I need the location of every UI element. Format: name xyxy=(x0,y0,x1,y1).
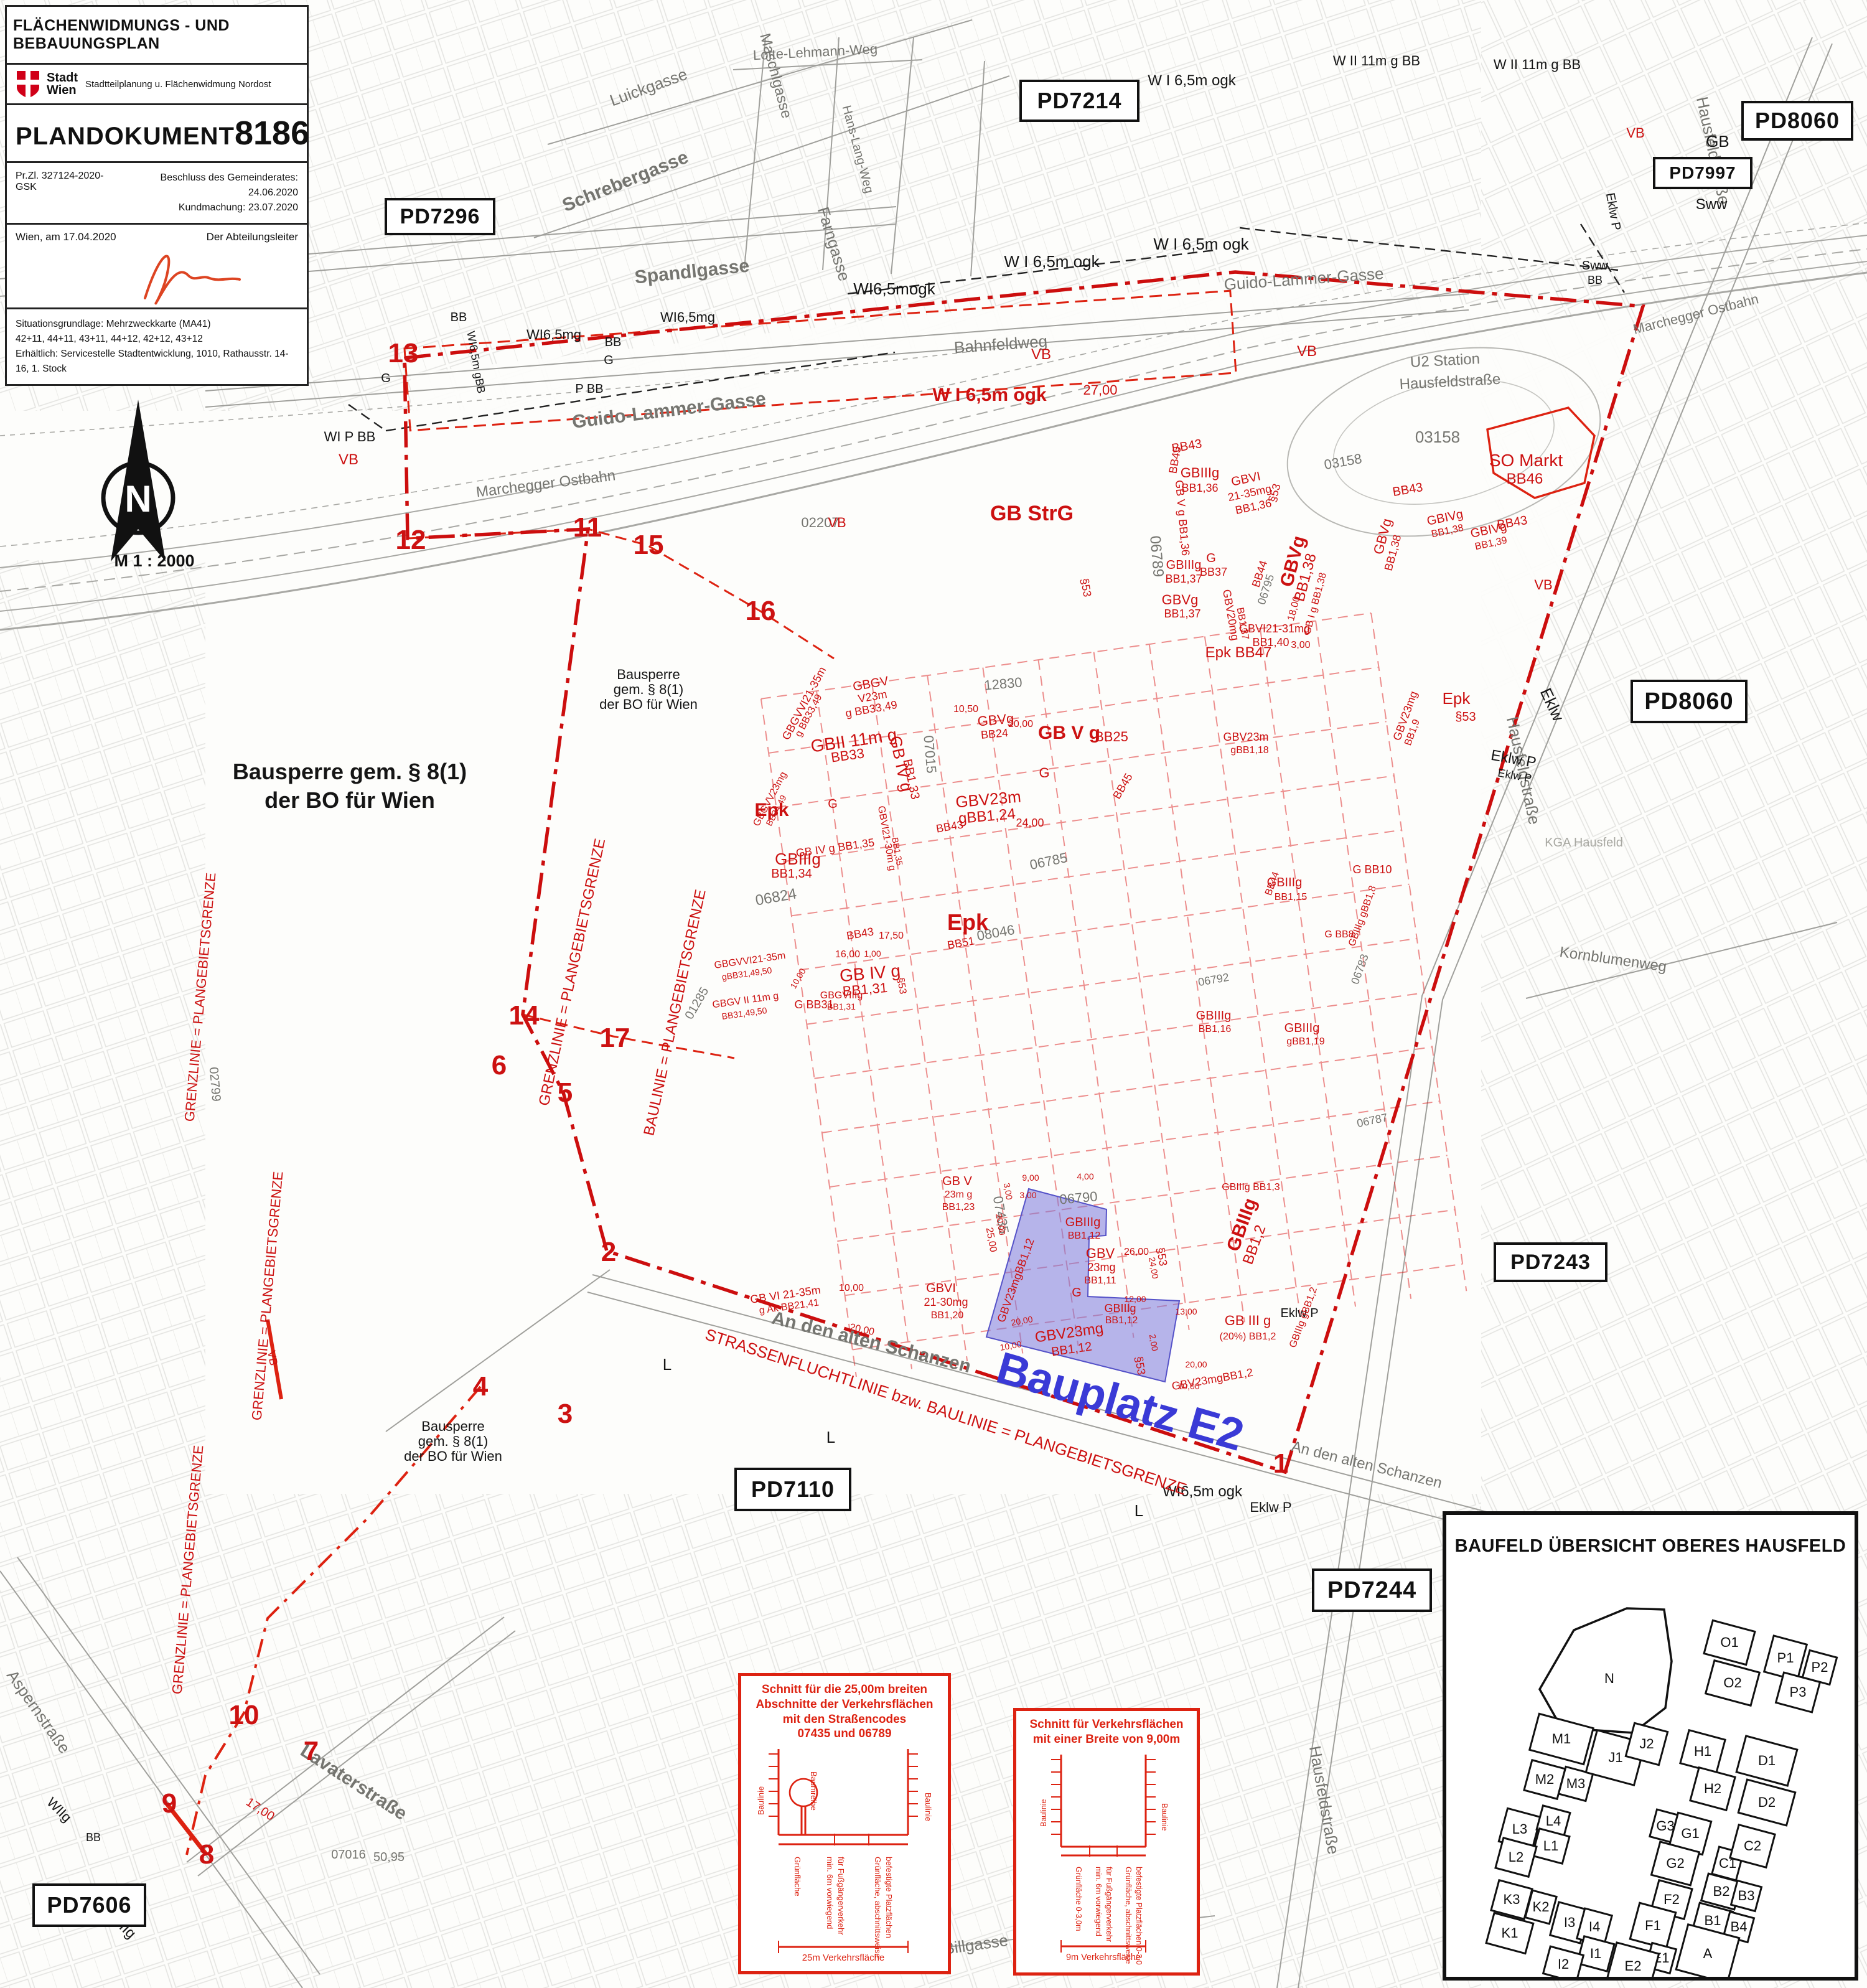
svg-text:L4: L4 xyxy=(1546,1813,1561,1829)
svg-text:Baulinie: Baulinie xyxy=(1039,1799,1048,1827)
baufeld-inset: BAUFELD ÜBERSICHT OBERES HAUSFELD NO1O2P… xyxy=(1443,1511,1858,1981)
inset-field: H2 xyxy=(1690,1768,1735,1811)
plan-title: FLÄCHENWIDMUNGS - UND BEBAUUNGSPLAN xyxy=(7,7,307,65)
schnitt1-title-3: mit den Straßencodes xyxy=(741,1712,948,1727)
svg-text:9m Verkehrsfläche: 9m Verkehrsfläche xyxy=(1066,1953,1141,1962)
org-row: Stadt Wien Stadtteilplanung u. Flächenwi… xyxy=(7,65,307,105)
svg-text:K2: K2 xyxy=(1533,1899,1550,1915)
svg-text:B4: B4 xyxy=(1731,1919,1748,1934)
schnitt1-diagram: Baulinie Baulinie Baumreihe Grünfläche m… xyxy=(741,1742,942,1966)
schnitt1-title-4: 07435 und 06789 xyxy=(741,1727,948,1742)
svg-text:Grünfläche, abschnittsweise: Grünfläche, abschnittsweise xyxy=(873,1857,882,1958)
pd-document-box: PD7243 xyxy=(1494,1242,1607,1282)
svg-text:P1: P1 xyxy=(1777,1650,1794,1666)
svg-text:für Fußgängerverkehr: für Fußgängerverkehr xyxy=(836,1857,846,1935)
svg-text:O1: O1 xyxy=(1720,1634,1738,1650)
date-line: Wien, am 17.04.2020 xyxy=(16,231,116,243)
inset-field: J2 xyxy=(1626,1723,1667,1765)
schnitt2-diagram: Baulinie Baulinie Grünfläche 0-3,0m min.… xyxy=(1016,1747,1191,1965)
svg-text:C2: C2 xyxy=(1744,1838,1761,1854)
svg-text:G2: G2 xyxy=(1666,1855,1684,1871)
svg-text:Baulinie: Baulinie xyxy=(924,1793,933,1821)
svg-text:min. 6m vorwiegend: min. 6m vorwiegend xyxy=(825,1857,835,1929)
inset-field: N xyxy=(1540,1608,1672,1733)
pd-document-box: PD7606 xyxy=(32,1883,146,1927)
schnitt-9m-box: Schnitt für Verkehrsflächen mit einer Br… xyxy=(1013,1708,1200,1976)
svg-text:P3: P3 xyxy=(1790,1684,1807,1700)
svg-text:Baulinie: Baulinie xyxy=(756,1786,765,1815)
org-dept: Stadtteilplanung u. Flächenwidmung Nordo… xyxy=(85,79,271,90)
inset-field: D1 xyxy=(1736,1736,1797,1786)
svg-text:K1: K1 xyxy=(1502,1925,1518,1941)
svg-text:für Fußgängerverkehr: für Fußgängerverkehr xyxy=(1105,1867,1113,1942)
svg-text:L3: L3 xyxy=(1512,1821,1527,1837)
pd-document-box: PD7110 xyxy=(734,1468,851,1511)
inset-field: I1 xyxy=(1577,1936,1614,1971)
svg-text:B3: B3 xyxy=(1738,1888,1755,1903)
svg-text:H1: H1 xyxy=(1694,1743,1711,1759)
svg-text:M3: M3 xyxy=(1566,1776,1586,1791)
svg-text:L2: L2 xyxy=(1509,1849,1523,1865)
pd-document-box: PD8060 xyxy=(1741,101,1853,141)
inset-field: O1 xyxy=(1704,1620,1755,1664)
pd-document-box: PD8060 xyxy=(1631,680,1748,723)
kundmachung: Kundmachung: 23.07.2020 xyxy=(118,200,298,215)
svg-text:F1: F1 xyxy=(1645,1918,1661,1933)
svg-text:J2: J2 xyxy=(1639,1736,1654,1751)
svg-text:D2: D2 xyxy=(1758,1794,1776,1810)
svg-text:E2: E2 xyxy=(1625,1958,1642,1974)
pd-document-box: PD7244 xyxy=(1312,1568,1432,1612)
svg-text:I1: I1 xyxy=(1590,1946,1601,1961)
svg-text:J1: J1 xyxy=(1608,1750,1622,1765)
svg-text:O2: O2 xyxy=(1723,1675,1741,1690)
svg-text:Baumreihe: Baumreihe xyxy=(809,1771,818,1811)
svg-text:befestigte Platzflächen 0-3,0m: befestigte Platzflächen 0-3,0m xyxy=(1135,1867,1143,1965)
svg-text:I4: I4 xyxy=(1589,1919,1600,1934)
sheets: 42+11, 44+11, 43+11, 44+12, 42+12, 43+12 xyxy=(16,332,298,347)
schnitt2-title-1: Schnitt für Verkehrsflächen xyxy=(1016,1717,1197,1732)
svg-text:25m Verkehrsfläche: 25m Verkehrsfläche xyxy=(802,1953,885,1963)
svg-text:M2: M2 xyxy=(1535,1771,1555,1787)
pd-document-box: PD7214 xyxy=(1019,80,1139,122)
doc-label: PLANDOKUMENT xyxy=(16,123,235,151)
svg-text:I2: I2 xyxy=(1558,1956,1569,1972)
inset-field: B3 xyxy=(1731,1881,1762,1911)
inset-field: H1 xyxy=(1680,1730,1725,1773)
inset-map: NO1O2P1P2P3M1M2M3J1J2H1H2D1D2L3L4L1L2K3K… xyxy=(1446,1515,1855,1977)
doc-number: 8186 xyxy=(235,114,309,152)
pd-document-box: PD7997 xyxy=(1653,157,1752,189)
svg-text:D1: D1 xyxy=(1758,1753,1776,1768)
title-block: FLÄCHENWIDMUNGS - UND BEBAUUNGSPLAN Stad… xyxy=(5,5,309,386)
svg-text:B2: B2 xyxy=(1713,1883,1730,1899)
pr-zl: Pr.Zl. 327124-2020-GSK xyxy=(16,171,118,215)
inset-field: I2 xyxy=(1543,1946,1584,1977)
svg-text:P2: P2 xyxy=(1812,1659,1828,1675)
signature xyxy=(134,243,258,306)
schnitt1-title-1: Schnitt für die 25,00m breiten xyxy=(741,1682,948,1697)
meta-row: Pr.Zl. 327124-2020-GSK Beschluss des Gem… xyxy=(7,163,307,225)
svg-text:A: A xyxy=(1703,1946,1713,1961)
schnitt1-title-2: Abschnitte der Verkehrsflächen xyxy=(741,1697,948,1712)
leader-label: Der Abteilungsleiter xyxy=(207,231,298,243)
plandokument-row: PLANDOKUMENT 8186 xyxy=(7,105,307,163)
svg-text:G1: G1 xyxy=(1681,1826,1699,1841)
org-name-2: Wien xyxy=(47,83,77,97)
svg-text:I3: I3 xyxy=(1564,1915,1575,1930)
svg-text:min. 6m vorwiegend: min. 6m vorwiegend xyxy=(1094,1867,1103,1936)
schnitt-25m-box: Schnitt für die 25,00m breiten Abschnitt… xyxy=(738,1673,951,1974)
svg-text:K3: K3 xyxy=(1504,1892,1520,1907)
svg-text:G3: G3 xyxy=(1656,1818,1674,1834)
svg-text:N: N xyxy=(1604,1671,1614,1686)
svg-text:Grünfläche 0-3,0m: Grünfläche 0-3,0m xyxy=(1074,1867,1083,1931)
source-row: Situationsgrundlage: Mehrzweckkarte (MA4… xyxy=(7,309,307,384)
erhaeltlich: Erhältlich: Servicestelle Stadtentwicklu… xyxy=(16,347,298,377)
pd-document-box: PD7296 xyxy=(385,198,495,235)
situationsgrundlage: Situationsgrundlage: Mehrzweckkarte (MA4… xyxy=(16,317,298,332)
svg-text:befestigte Platzflächen: befestigte Platzflächen xyxy=(884,1857,894,1938)
org-name-1: Stadt xyxy=(47,71,78,85)
svg-text:B1: B1 xyxy=(1705,1913,1721,1928)
inset-field: K1 xyxy=(1486,1913,1533,1953)
svg-text:F2: F2 xyxy=(1663,1892,1680,1907)
svg-text:H2: H2 xyxy=(1704,1781,1721,1796)
beschluss: Beschluss des Gemeinderates: 24.06.2020 xyxy=(118,171,298,200)
svg-text:Grünfläche, abschnittsweise: Grünfläche, abschnittsweise xyxy=(1124,1867,1133,1964)
svg-text:M1: M1 xyxy=(1552,1731,1571,1747)
schnitt2-title-2: mit einer Breite von 9,00m xyxy=(1016,1732,1197,1747)
stadt-wien-logo xyxy=(16,70,40,98)
plan-sheet: N M 1 : 2000 SpandlgasseSpandlgasseGuido… xyxy=(0,0,1867,1988)
svg-text:Grünfläche: Grünfläche xyxy=(793,1857,802,1897)
svg-text:Baulinie: Baulinie xyxy=(1160,1803,1169,1831)
svg-text:L1: L1 xyxy=(1543,1838,1558,1854)
signature-row: Wien, am 17.04.2020 Der Abteilungsleiter xyxy=(7,225,307,309)
inset-field: O2 xyxy=(1706,1661,1760,1706)
